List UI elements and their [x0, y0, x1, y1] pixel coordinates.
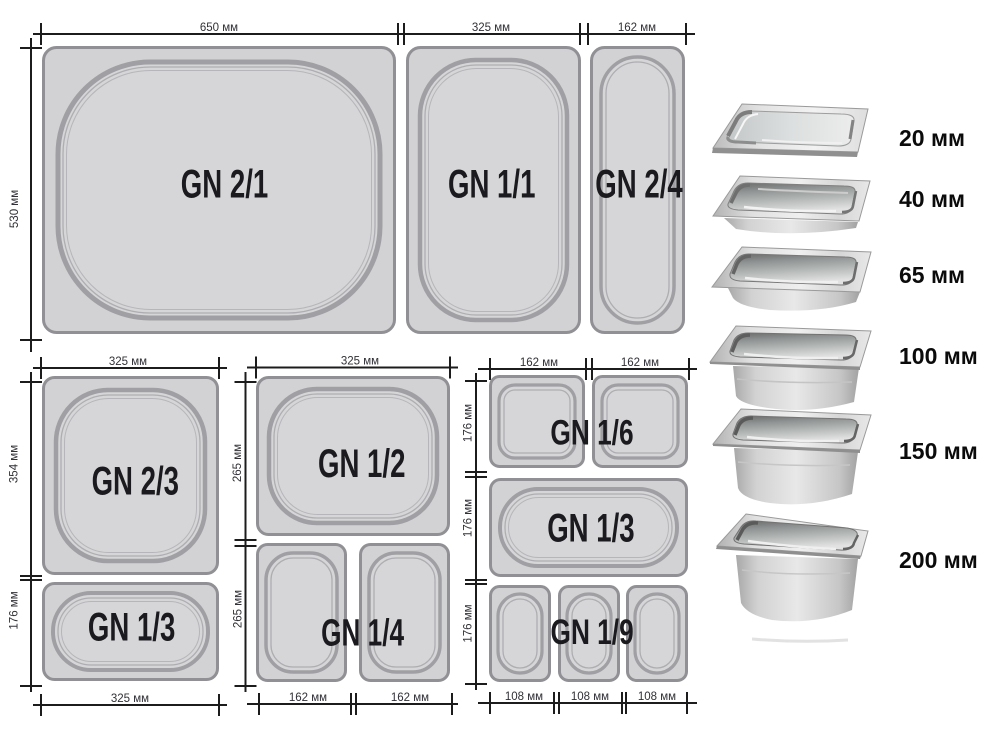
- svg-text:100 мм: 100 мм: [899, 343, 978, 369]
- svg-text:GN 1/3: GN 1/3: [88, 606, 175, 650]
- svg-text:265 мм: 265 мм: [232, 444, 244, 482]
- svg-text:20 мм: 20 мм: [899, 125, 965, 151]
- svg-text:108 мм: 108 мм: [571, 691, 609, 703]
- svg-text:GN 2/4: GN 2/4: [595, 163, 682, 207]
- svg-text:150 мм: 150 мм: [899, 438, 978, 464]
- svg-text:GN 1/9: GN 1/9: [551, 612, 634, 652]
- svg-text:325 мм: 325 мм: [111, 693, 149, 705]
- svg-text:GN 2/1: GN 2/1: [181, 163, 268, 207]
- svg-text:GN 1/1: GN 1/1: [448, 163, 535, 207]
- svg-text:162 мм: 162 мм: [618, 22, 656, 34]
- svg-text:GN 2/3: GN 2/3: [92, 460, 179, 504]
- svg-text:GN 1/2: GN 1/2: [318, 442, 405, 486]
- svg-text:176 мм: 176 мм: [463, 499, 475, 537]
- svg-text:GN 1/3: GN 1/3: [547, 506, 634, 550]
- svg-text:40 мм: 40 мм: [899, 186, 965, 212]
- svg-text:265 мм: 265 мм: [232, 590, 244, 628]
- svg-text:325 мм: 325 мм: [109, 356, 147, 368]
- svg-text:176 мм: 176 мм: [8, 591, 20, 629]
- svg-text:GN 1/6: GN 1/6: [550, 413, 633, 453]
- svg-text:162 мм: 162 мм: [520, 357, 558, 369]
- svg-text:200 мм: 200 мм: [899, 547, 978, 573]
- svg-text:354 мм: 354 мм: [8, 445, 20, 483]
- svg-text:162 мм: 162 мм: [289, 692, 327, 704]
- svg-text:325 мм: 325 мм: [472, 22, 510, 34]
- svg-text:325 мм: 325 мм: [341, 356, 379, 368]
- svg-text:162 мм: 162 мм: [621, 357, 659, 369]
- svg-text:65 мм: 65 мм: [899, 262, 965, 288]
- svg-text:GN 1/4: GN 1/4: [321, 611, 404, 654]
- svg-text:108 мм: 108 мм: [638, 691, 676, 703]
- svg-text:530 мм: 530 мм: [9, 190, 21, 228]
- svg-text:176 мм: 176 мм: [463, 404, 475, 442]
- svg-text:108 мм: 108 мм: [505, 691, 543, 703]
- svg-text:162 мм: 162 мм: [391, 692, 429, 704]
- svg-text:650 мм: 650 мм: [200, 22, 238, 34]
- svg-text:176 мм: 176 мм: [463, 604, 475, 642]
